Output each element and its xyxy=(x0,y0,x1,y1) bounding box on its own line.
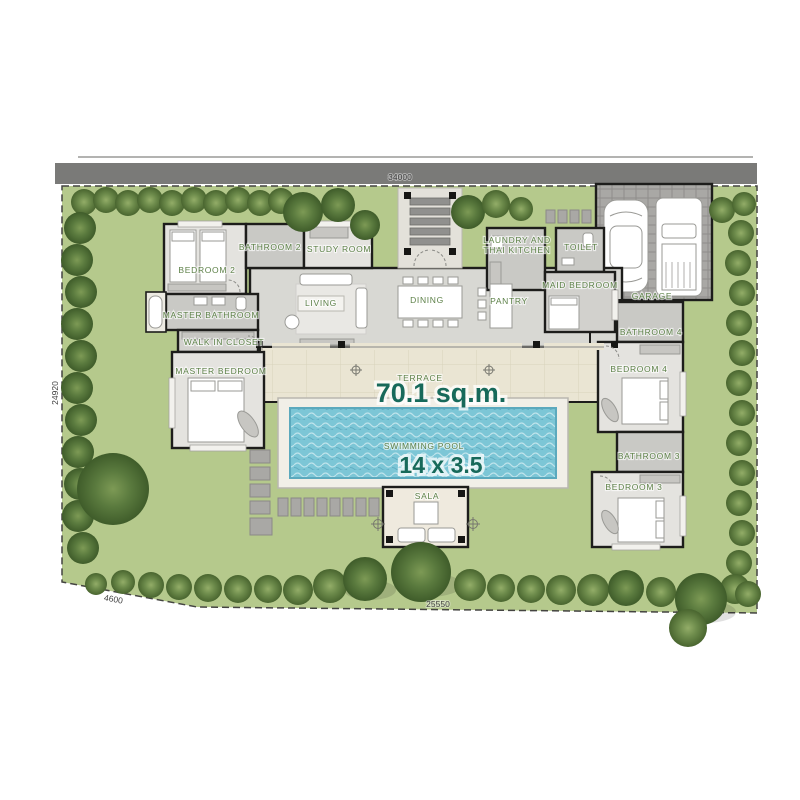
car-pickup-icon xyxy=(656,198,702,296)
label-bedroom4: BEDROOM 4 xyxy=(610,364,667,374)
label-laundry-2: THAI KITCHEN xyxy=(483,245,550,255)
label-terrace-area: 70.1 sq.m. xyxy=(376,378,507,408)
sala-post xyxy=(386,490,393,497)
dimension-bottom-left: 4600 xyxy=(103,592,124,605)
window xyxy=(680,496,686,536)
window xyxy=(612,544,660,550)
window xyxy=(680,372,686,416)
label-bedroom2: BEDROOM 2 xyxy=(178,265,235,275)
label-laundry-1: LAUNDRY AND xyxy=(483,235,551,245)
terrace-post xyxy=(533,341,540,348)
dimension-left: 24920 xyxy=(50,381,60,405)
floor-plan-drawing: BEDROOM 2 BATHROOM 2 STUDY ROOM LIVING D… xyxy=(0,0,800,800)
bathtub-icon xyxy=(149,296,162,328)
sala-post xyxy=(458,536,465,543)
label-living: LIVING xyxy=(305,298,337,308)
study-desk xyxy=(310,227,348,238)
label-master-bedroom: MASTER BEDROOM xyxy=(175,366,266,376)
window xyxy=(169,378,175,428)
label-bedroom3: BEDROOM 3 xyxy=(605,482,662,492)
window xyxy=(612,290,618,320)
label-bathroom3: BATHROOM 3 xyxy=(618,451,680,461)
label-pantry: PANTRY xyxy=(490,296,528,306)
label-garage: GARAGE xyxy=(632,291,672,301)
label-bathroom2: BATHROOM 2 xyxy=(239,242,301,252)
label-swimming-pool: SWIMMING POOL xyxy=(384,441,464,451)
label-pool-size: 14 x 3.5 xyxy=(399,452,482,478)
entry-post xyxy=(449,248,456,255)
dimension-bottom: 25550 xyxy=(426,599,450,609)
entry-post xyxy=(449,192,456,199)
label-bathroom4: BATHROOM 4 xyxy=(620,327,682,337)
entry-post xyxy=(404,248,411,255)
sala-post xyxy=(458,490,465,497)
label-study-room: STUDY ROOM xyxy=(307,244,371,254)
label-dining: DINING xyxy=(410,295,444,305)
label-master-bathroom: MASTER BATHROOM xyxy=(163,310,259,320)
floor-plan-page: BEDROOM 2 BATHROOM 2 STUDY ROOM LIVING D… xyxy=(0,0,800,800)
terrace-post xyxy=(338,341,345,348)
window xyxy=(190,445,246,451)
label-toilet: TOILET xyxy=(564,242,598,252)
master-bed xyxy=(188,378,244,442)
label-maid-bedroom: MAID BEDROOM xyxy=(542,280,618,290)
entrance-steps xyxy=(410,198,450,245)
label-sala: SALA xyxy=(415,491,439,501)
sala-post xyxy=(386,536,393,543)
label-walk-in-closet: WALK IN CLOSET xyxy=(184,337,265,347)
maid-bed xyxy=(549,296,579,329)
entry-post xyxy=(404,192,411,199)
dimension-top: 34000 xyxy=(388,172,412,182)
window xyxy=(178,221,222,227)
